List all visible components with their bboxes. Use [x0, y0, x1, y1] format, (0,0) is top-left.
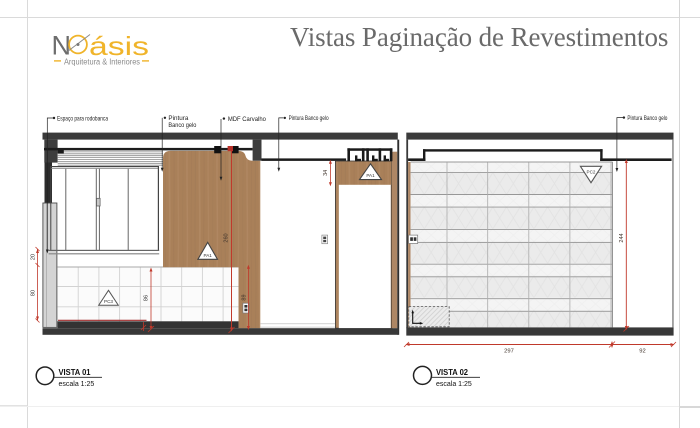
svg-text:PC3: PC3 [104, 299, 113, 304]
svg-text:VISTA 01: VISTA 01 [59, 367, 91, 377]
svg-text:Pintura Banco gelo: Pintura Banco gelo [627, 116, 668, 122]
svg-text:Pintura Banco gelo: Pintura Banco gelo [289, 116, 330, 122]
svg-text:PA1: PA1 [366, 173, 375, 178]
svg-text:escala 1:25: escala 1:25 [436, 381, 472, 388]
svg-text:PC2: PC2 [587, 170, 596, 175]
svg-text:20: 20 [31, 254, 37, 260]
svg-text:Pintura: Pintura [168, 116, 189, 122]
svg-text:297: 297 [504, 349, 514, 355]
svg-text:escala 1:25: escala 1:25 [59, 381, 95, 388]
svg-text:PA1: PA1 [204, 253, 213, 258]
svg-text:80: 80 [31, 290, 37, 296]
svg-text:MDF Carvalho: MDF Carvalho [228, 116, 266, 123]
svg-text:VISTA 02: VISTA 02 [436, 367, 468, 377]
svg-text:86: 86 [144, 295, 150, 301]
svg-text:92: 92 [639, 349, 645, 355]
svg-text:34: 34 [323, 170, 329, 176]
svg-text:89: 89 [242, 294, 248, 300]
svg-text:Banco gelo: Banco gelo [168, 123, 197, 129]
svg-text:244: 244 [619, 233, 625, 242]
svg-text:Espaço para rodobanca: Espaço para rodobanca [57, 116, 109, 122]
svg-text:260: 260 [223, 233, 229, 242]
